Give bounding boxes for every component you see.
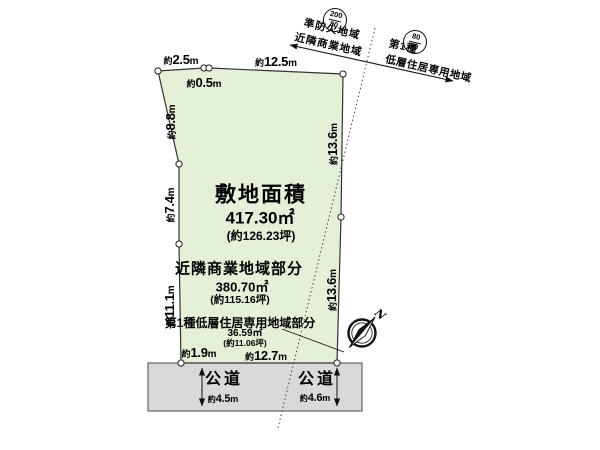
dim-right-lower: 約13.6m [324, 269, 340, 311]
road-right-label: 公道 [298, 372, 336, 388]
dim-bottom-left: 約1.9m [181, 345, 216, 361]
site-area-tsubo: (約126.23坪) [227, 230, 296, 242]
dim-left-middle: 約7.4m [162, 187, 178, 222]
compass-icon: N [349, 306, 389, 348]
commercial-part-value: 380.70㎡ [216, 281, 269, 294]
dim-top-offset: 約0.5m [186, 75, 221, 91]
dim-bottom-main: 約12.7m [245, 348, 287, 364]
dim-top-left: 約2.5m [163, 52, 198, 68]
commercial-part-title: 近隣商業地域部分 [175, 262, 303, 277]
dim-left-upper: 約8.8m [163, 104, 179, 139]
site-plan-diagram: N 約2.5m 約0.5m 約12.5m 約8.8m 約7.4m 約11.1m … [0, 0, 600, 450]
dim-right-upper: 約13.6m [325, 123, 341, 165]
residential-part-tsubo: (約11.06坪) [223, 339, 266, 348]
commercial-part-tsubo: (約115.16坪) [210, 295, 270, 306]
dim-top-main: 約12.5m [255, 54, 297, 70]
site-area-value: 417.30㎡ [226, 210, 295, 227]
road-left-label: 公道 [205, 372, 243, 388]
site-area-title: 敷地面積 [215, 185, 307, 206]
road-right-width: 約4.6m [300, 389, 330, 405]
compass-north-label: N [371, 306, 389, 324]
road-left-width: 約4.5m [208, 390, 238, 406]
